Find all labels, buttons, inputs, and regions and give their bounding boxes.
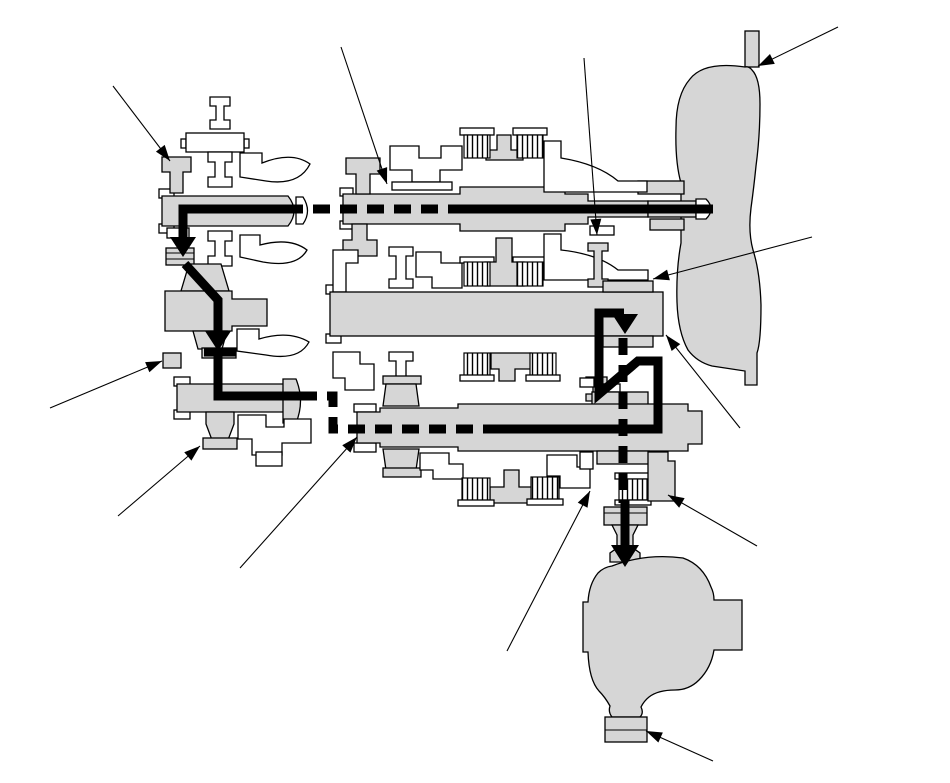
- bracket-above-input: [390, 146, 462, 182]
- callout-arrowhead: [646, 731, 663, 743]
- clutch-plate: [458, 500, 494, 506]
- clutch-pack: [517, 135, 543, 158]
- shift-bar-tab-left: [181, 139, 186, 148]
- callout-arrowhead: [666, 335, 680, 351]
- gear-lobe-bottom: [383, 449, 419, 470]
- clutch-web-row4: [490, 470, 533, 503]
- middle-shaft-bottom-bar-target: [603, 336, 653, 347]
- callout-arrowhead: [145, 361, 162, 372]
- gear-lobe-top: [383, 384, 419, 406]
- clutch-plate: [526, 375, 560, 381]
- callout-arrowhead: [578, 491, 590, 508]
- shaft5-left-step-bottom: [354, 443, 376, 452]
- clutch-web-row3: [491, 353, 531, 381]
- gear-flange-bottom: [383, 468, 421, 477]
- bracket-above-shaft4: [333, 250, 358, 292]
- housing-arm-upper-right: [544, 141, 647, 192]
- bracket-above-input-foot: [392, 182, 452, 190]
- housing-hub-lower: [650, 219, 684, 230]
- callout-line: [50, 361, 162, 408]
- clutch-pack: [464, 262, 490, 286]
- clutch-plate: [527, 499, 563, 505]
- detent-mid-left: [389, 247, 413, 288]
- diagram-canvas: [0, 0, 950, 783]
- bracket-foot: [256, 452, 282, 466]
- shift-fork-upper: [240, 153, 310, 182]
- clutch-pack: [464, 353, 490, 377]
- clutch-pack: [530, 353, 556, 377]
- shift-detent-lower: [208, 152, 232, 187]
- shift-detent-upper: [210, 97, 230, 129]
- callout-arrowhead: [184, 446, 200, 461]
- clutch-pack: [531, 477, 559, 501]
- top-stub-shaft: [745, 31, 759, 67]
- output-side-piece-target: [648, 452, 675, 501]
- transmission-cross-section-diagram: [0, 0, 950, 783]
- left-small-hub-target: [163, 353, 181, 368]
- bracket-below-cluster: [238, 415, 311, 455]
- middle-shaft-top-bar-target: [603, 281, 653, 292]
- clutch-plate: [513, 128, 547, 135]
- final-drive-housing: [583, 557, 742, 717]
- bell-housing: [676, 66, 761, 386]
- bracket-below-shaft5-left: [420, 453, 463, 479]
- shift-bar-tab-right: [244, 139, 249, 148]
- sleeve-target: [590, 226, 614, 235]
- callout-line: [507, 491, 590, 651]
- shaft3-bottom-hub: [206, 412, 234, 440]
- clutch-pack: [464, 135, 490, 158]
- shift-bar: [186, 133, 244, 152]
- left-gear-assembly: [159, 97, 311, 466]
- callout-line: [118, 446, 200, 516]
- bracket-output-left: [580, 452, 593, 469]
- bracket-below-shaft4-left: [333, 352, 374, 390]
- clutch-pack: [517, 262, 543, 286]
- clutch-plate: [460, 128, 494, 135]
- bracket-mid-left: [416, 252, 462, 288]
- shaft3-bottom-flange-target: [203, 438, 237, 449]
- callout-arrowhead: [758, 54, 775, 66]
- shaft1-top-flange: [162, 157, 191, 193]
- bracket-above-shaft5: [580, 378, 594, 387]
- gear-collar-top: [383, 376, 421, 384]
- shaft3-right-gear: [283, 379, 301, 423]
- shaft5-left-step-top: [354, 404, 376, 412]
- shift-fork-cluster: [237, 329, 309, 356]
- shift-detent-below-shaft1: [208, 231, 232, 266]
- final-drive-assembly: [583, 507, 742, 742]
- clutch-pack: [462, 478, 490, 502]
- clutch-plate: [460, 375, 494, 381]
- shift-fork-below-shaft1: [240, 235, 307, 264]
- callout-arrowhead: [653, 270, 670, 281]
